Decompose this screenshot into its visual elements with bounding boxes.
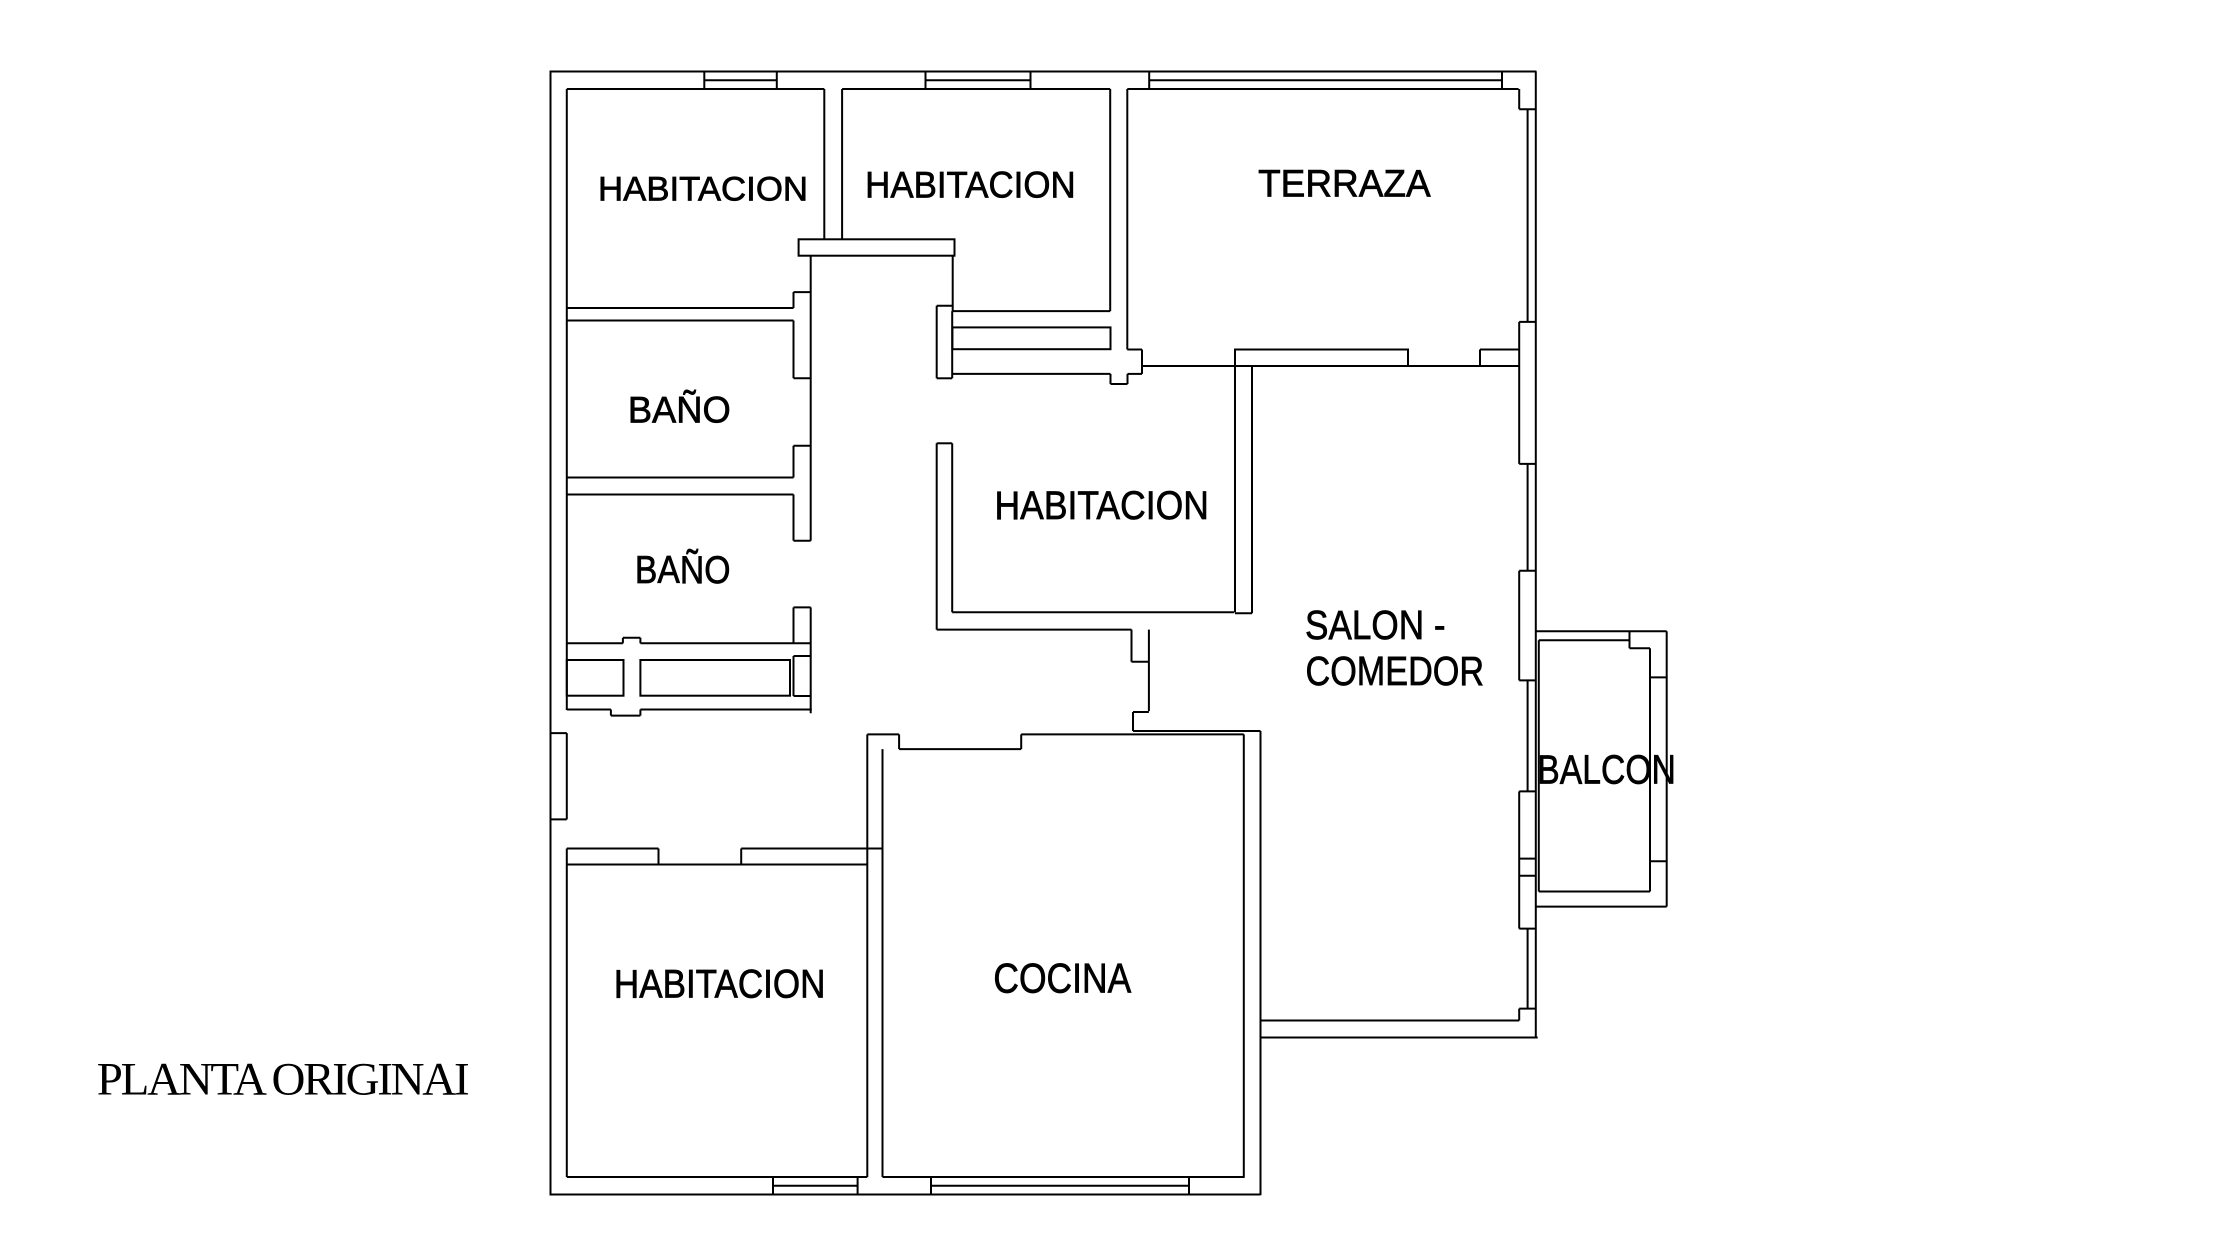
svg-text:BAÑO: BAÑO xyxy=(628,388,731,430)
svg-text:PLANTA ORIGINAI: PLANTA ORIGINAI xyxy=(97,1054,470,1106)
svg-text:HABITACION: HABITACION xyxy=(598,170,808,208)
svg-text:BAÑO: BAÑO xyxy=(635,549,731,592)
svg-text:HABITACION: HABITACION xyxy=(865,164,1076,205)
svg-text:COCINA: COCINA xyxy=(993,954,1131,1001)
svg-text:HABITACION: HABITACION xyxy=(995,484,1209,528)
svg-text:COMEDOR: COMEDOR xyxy=(1306,648,1485,694)
svg-text:SALON -: SALON - xyxy=(1305,602,1446,648)
svg-text:TERRAZA: TERRAZA xyxy=(1258,164,1431,206)
svg-text:BALCON: BALCON xyxy=(1537,747,1676,793)
svg-text:HABITACION: HABITACION xyxy=(614,963,826,1007)
